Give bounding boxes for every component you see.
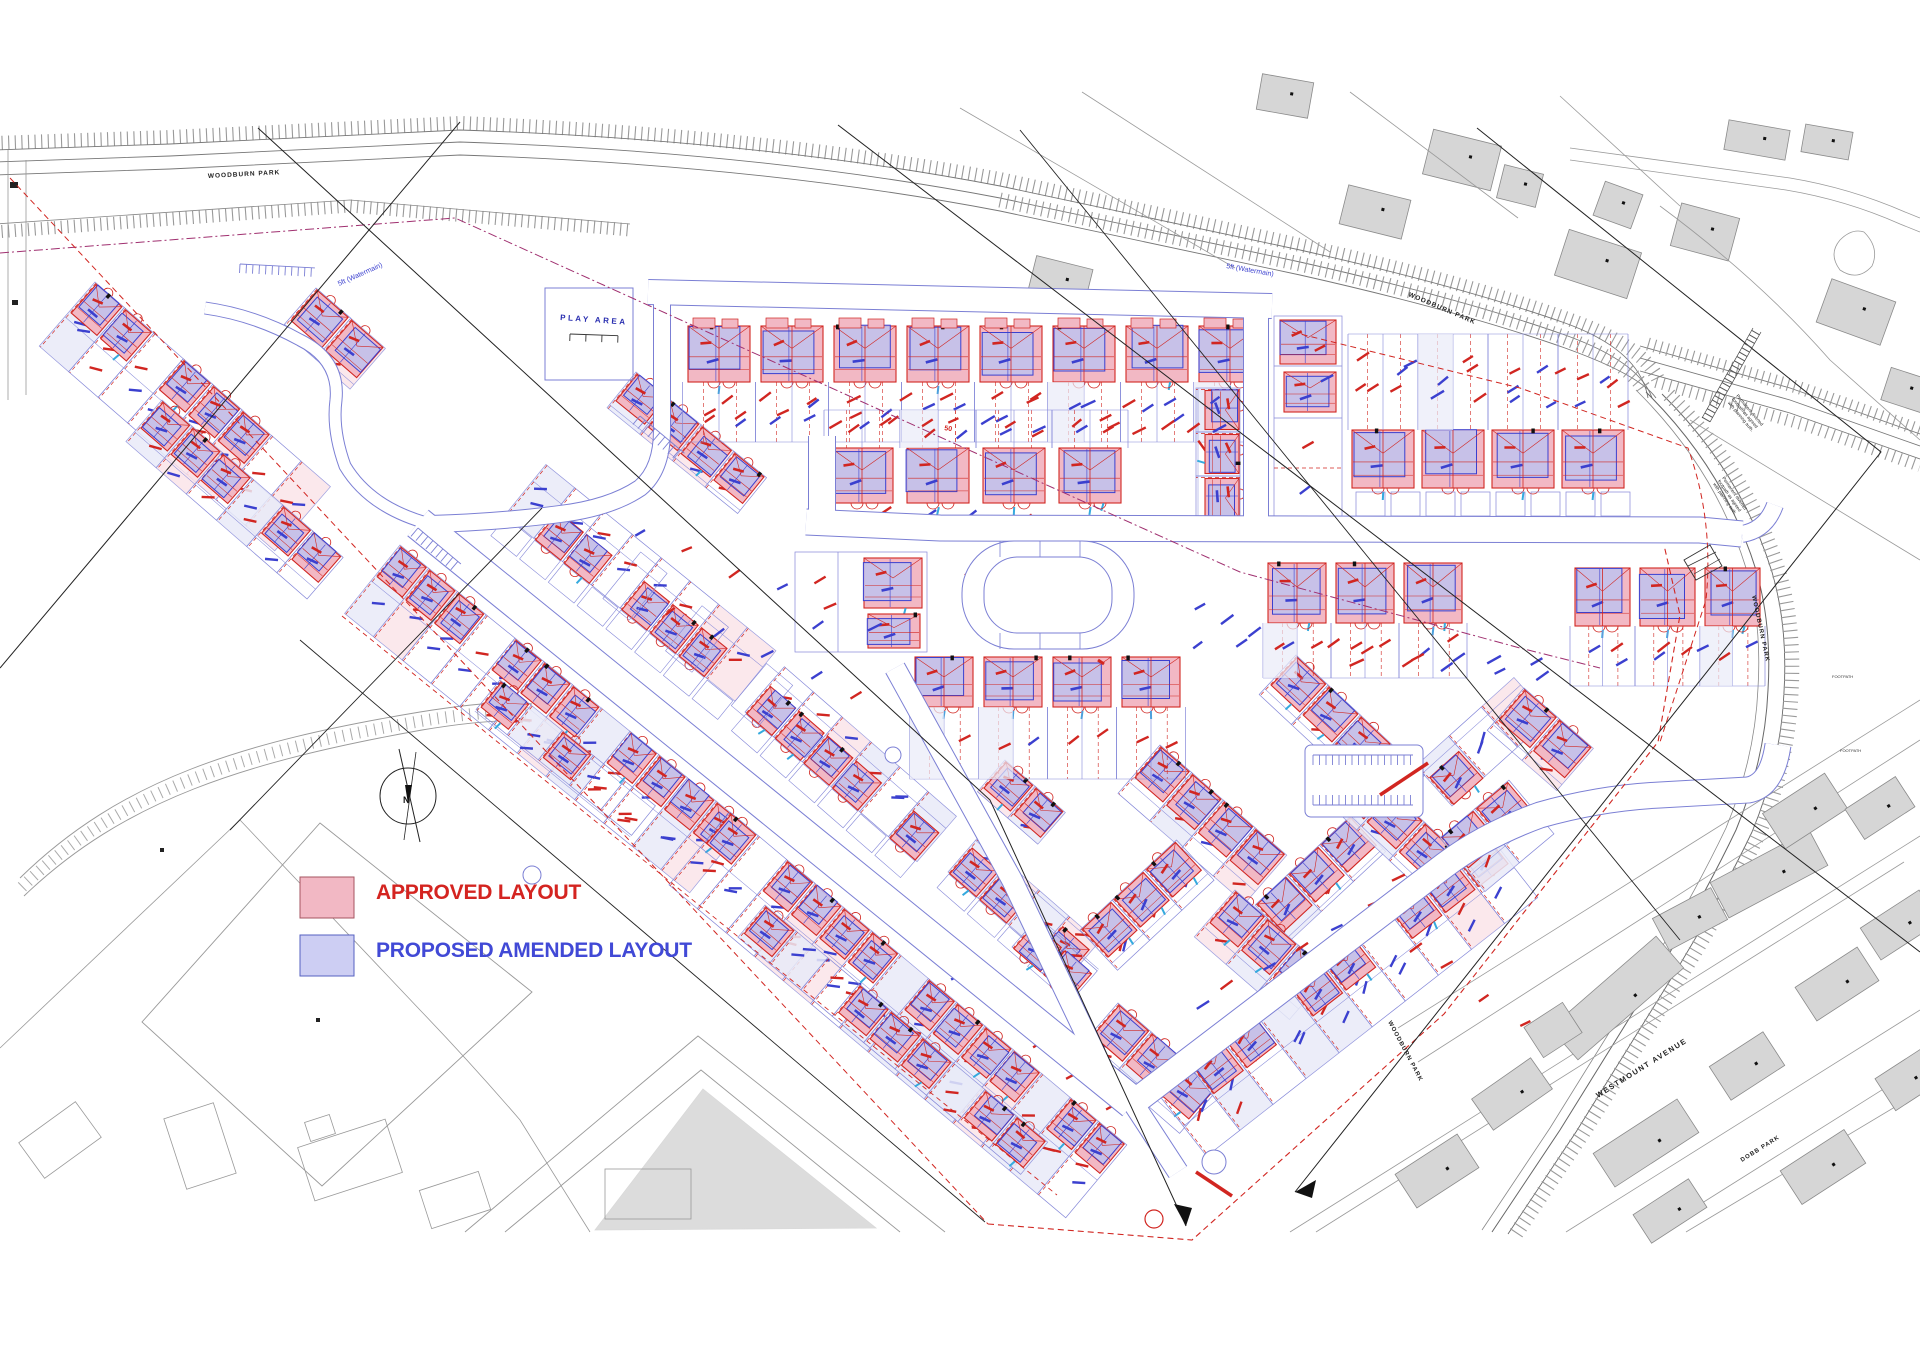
svg-text:N: N: [403, 795, 410, 805]
svg-text:50: 50: [944, 425, 953, 433]
svg-text:APPROVED LAYOUT: APPROVED LAYOUT: [376, 881, 581, 904]
svg-text:PROPOSED AMENDED LAYOUT: PROPOSED AMENDED LAYOUT: [376, 939, 692, 962]
svg-text:FOOTPATH: FOOTPATH: [1840, 748, 1861, 753]
svg-text:FOOTPATH: FOOTPATH: [1832, 674, 1853, 679]
